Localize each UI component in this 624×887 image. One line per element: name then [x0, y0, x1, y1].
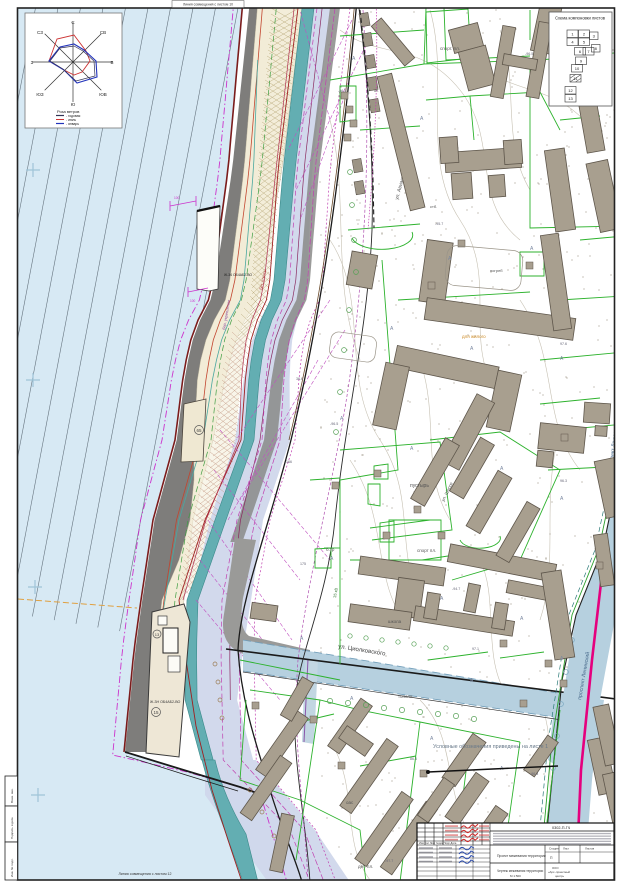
svg-text:СВ: СВ [100, 30, 106, 35]
svg-text:от.: от. [374, 88, 379, 93]
svg-text:97.6: 97.6 [560, 342, 567, 346]
svg-text:Условные обозначения приведе: Условные обозначения приведены на листе … [433, 744, 548, 750]
svg-text:Ж-3Н ОБ4АБ2-ВО: Ж-3Н ОБ4АБ2-ВО [150, 700, 180, 704]
svg-text:86.3: 86.3 [410, 757, 417, 761]
svg-text:спорт пл.: спорт пл. [417, 548, 436, 553]
svg-text:ЮВ: ЮВ [99, 92, 107, 97]
svg-text:100: 100 [190, 299, 196, 303]
svg-text:тополя: тополя [398, 694, 413, 699]
svg-text:175: 175 [300, 562, 306, 566]
svg-text:65: 65 [196, 428, 202, 433]
svg-text:Проект межевания территории: Проект межевания территории [497, 854, 546, 858]
svg-text:-94.7: -94.7 [452, 587, 460, 591]
svg-text:Взам. инв.: Взам. инв. [10, 788, 14, 803]
svg-text:Изм Кол Лист №док Подп Д: Изм Кол Лист №док Подп Дата [419, 841, 457, 845]
svg-text:школа: школа [388, 619, 402, 624]
svg-text:Лист: Лист [563, 847, 570, 851]
svg-text:Линия совмещения с листом 12: Линия совмещения с листом 12 [118, 872, 171, 876]
svg-text:дет. пл.: дет. пл. [358, 864, 373, 869]
svg-text:оас: оас [346, 800, 354, 805]
svg-text:13: 13 [568, 96, 573, 101]
svg-text:-97.7: -97.7 [385, 859, 393, 863]
svg-text:центр»: центр» [555, 874, 565, 878]
svg-text:В: В [110, 60, 113, 65]
svg-text:12: 12 [568, 88, 573, 93]
svg-text:ЮЗ: ЮЗ [36, 92, 44, 97]
svg-text:Ж-34 ОБ4АБ2-ВО: Ж-34 ОБ4АБ2-ВО [224, 273, 252, 277]
svg-text:97.1: 97.1 [472, 647, 479, 651]
svg-text:М 1:500: М 1:500 [510, 874, 521, 878]
svg-text:Подпись и дата: Подпись и дата [10, 817, 14, 839]
svg-text:-96.5: -96.5 [525, 52, 533, 56]
svg-text:для жилого: для жилого [462, 334, 486, 339]
svg-text:-96.5: -96.5 [330, 422, 338, 426]
svg-text:З: З [31, 60, 34, 65]
svg-text:б.тр: б.тр [326, 547, 335, 552]
svg-text:Инв. № подл.: Инв. № подл. [10, 858, 14, 877]
svg-text:10: 10 [575, 66, 580, 71]
svg-text:96.3: 96.3 [560, 479, 567, 483]
svg-text:-96.3: -96.3 [338, 89, 346, 93]
svg-text:-95.7: -95.7 [435, 222, 443, 226]
svg-text:100: 100 [174, 196, 180, 200]
svg-text:стб.: стб. [430, 204, 437, 209]
svg-text:спорт. пл.: спорт. пл. [440, 46, 460, 51]
svg-text:166: 166 [286, 460, 292, 464]
svg-text:Листов: Листов [585, 847, 595, 851]
svg-text:СЗ: СЗ [37, 30, 43, 35]
svg-text:Ю: Ю [71, 102, 76, 107]
svg-text:15: 15 [153, 710, 159, 715]
svg-text:- январь: - январь [66, 122, 79, 126]
svg-text:Линия совмещения с листом 10: Линия совмещения с листом 10 [183, 3, 233, 7]
svg-text:погреб: погреб [490, 268, 503, 273]
svg-text:-96.3: -96.3 [530, 772, 538, 776]
svg-text:Чертеж межевания территории: Чертеж межевания территории [497, 869, 543, 873]
svg-text:13: 13 [155, 632, 160, 637]
svg-text:пустырь: пустырь [410, 483, 429, 489]
svg-text:36.6: 36.6 [296, 377, 303, 381]
svg-text:Схема компоновки листов: Схема компоновки листов [555, 16, 605, 21]
svg-text:0302-П-ГЧ: 0302-П-ГЧ [552, 826, 571, 830]
svg-text:Стадия: Стадия [549, 847, 559, 851]
